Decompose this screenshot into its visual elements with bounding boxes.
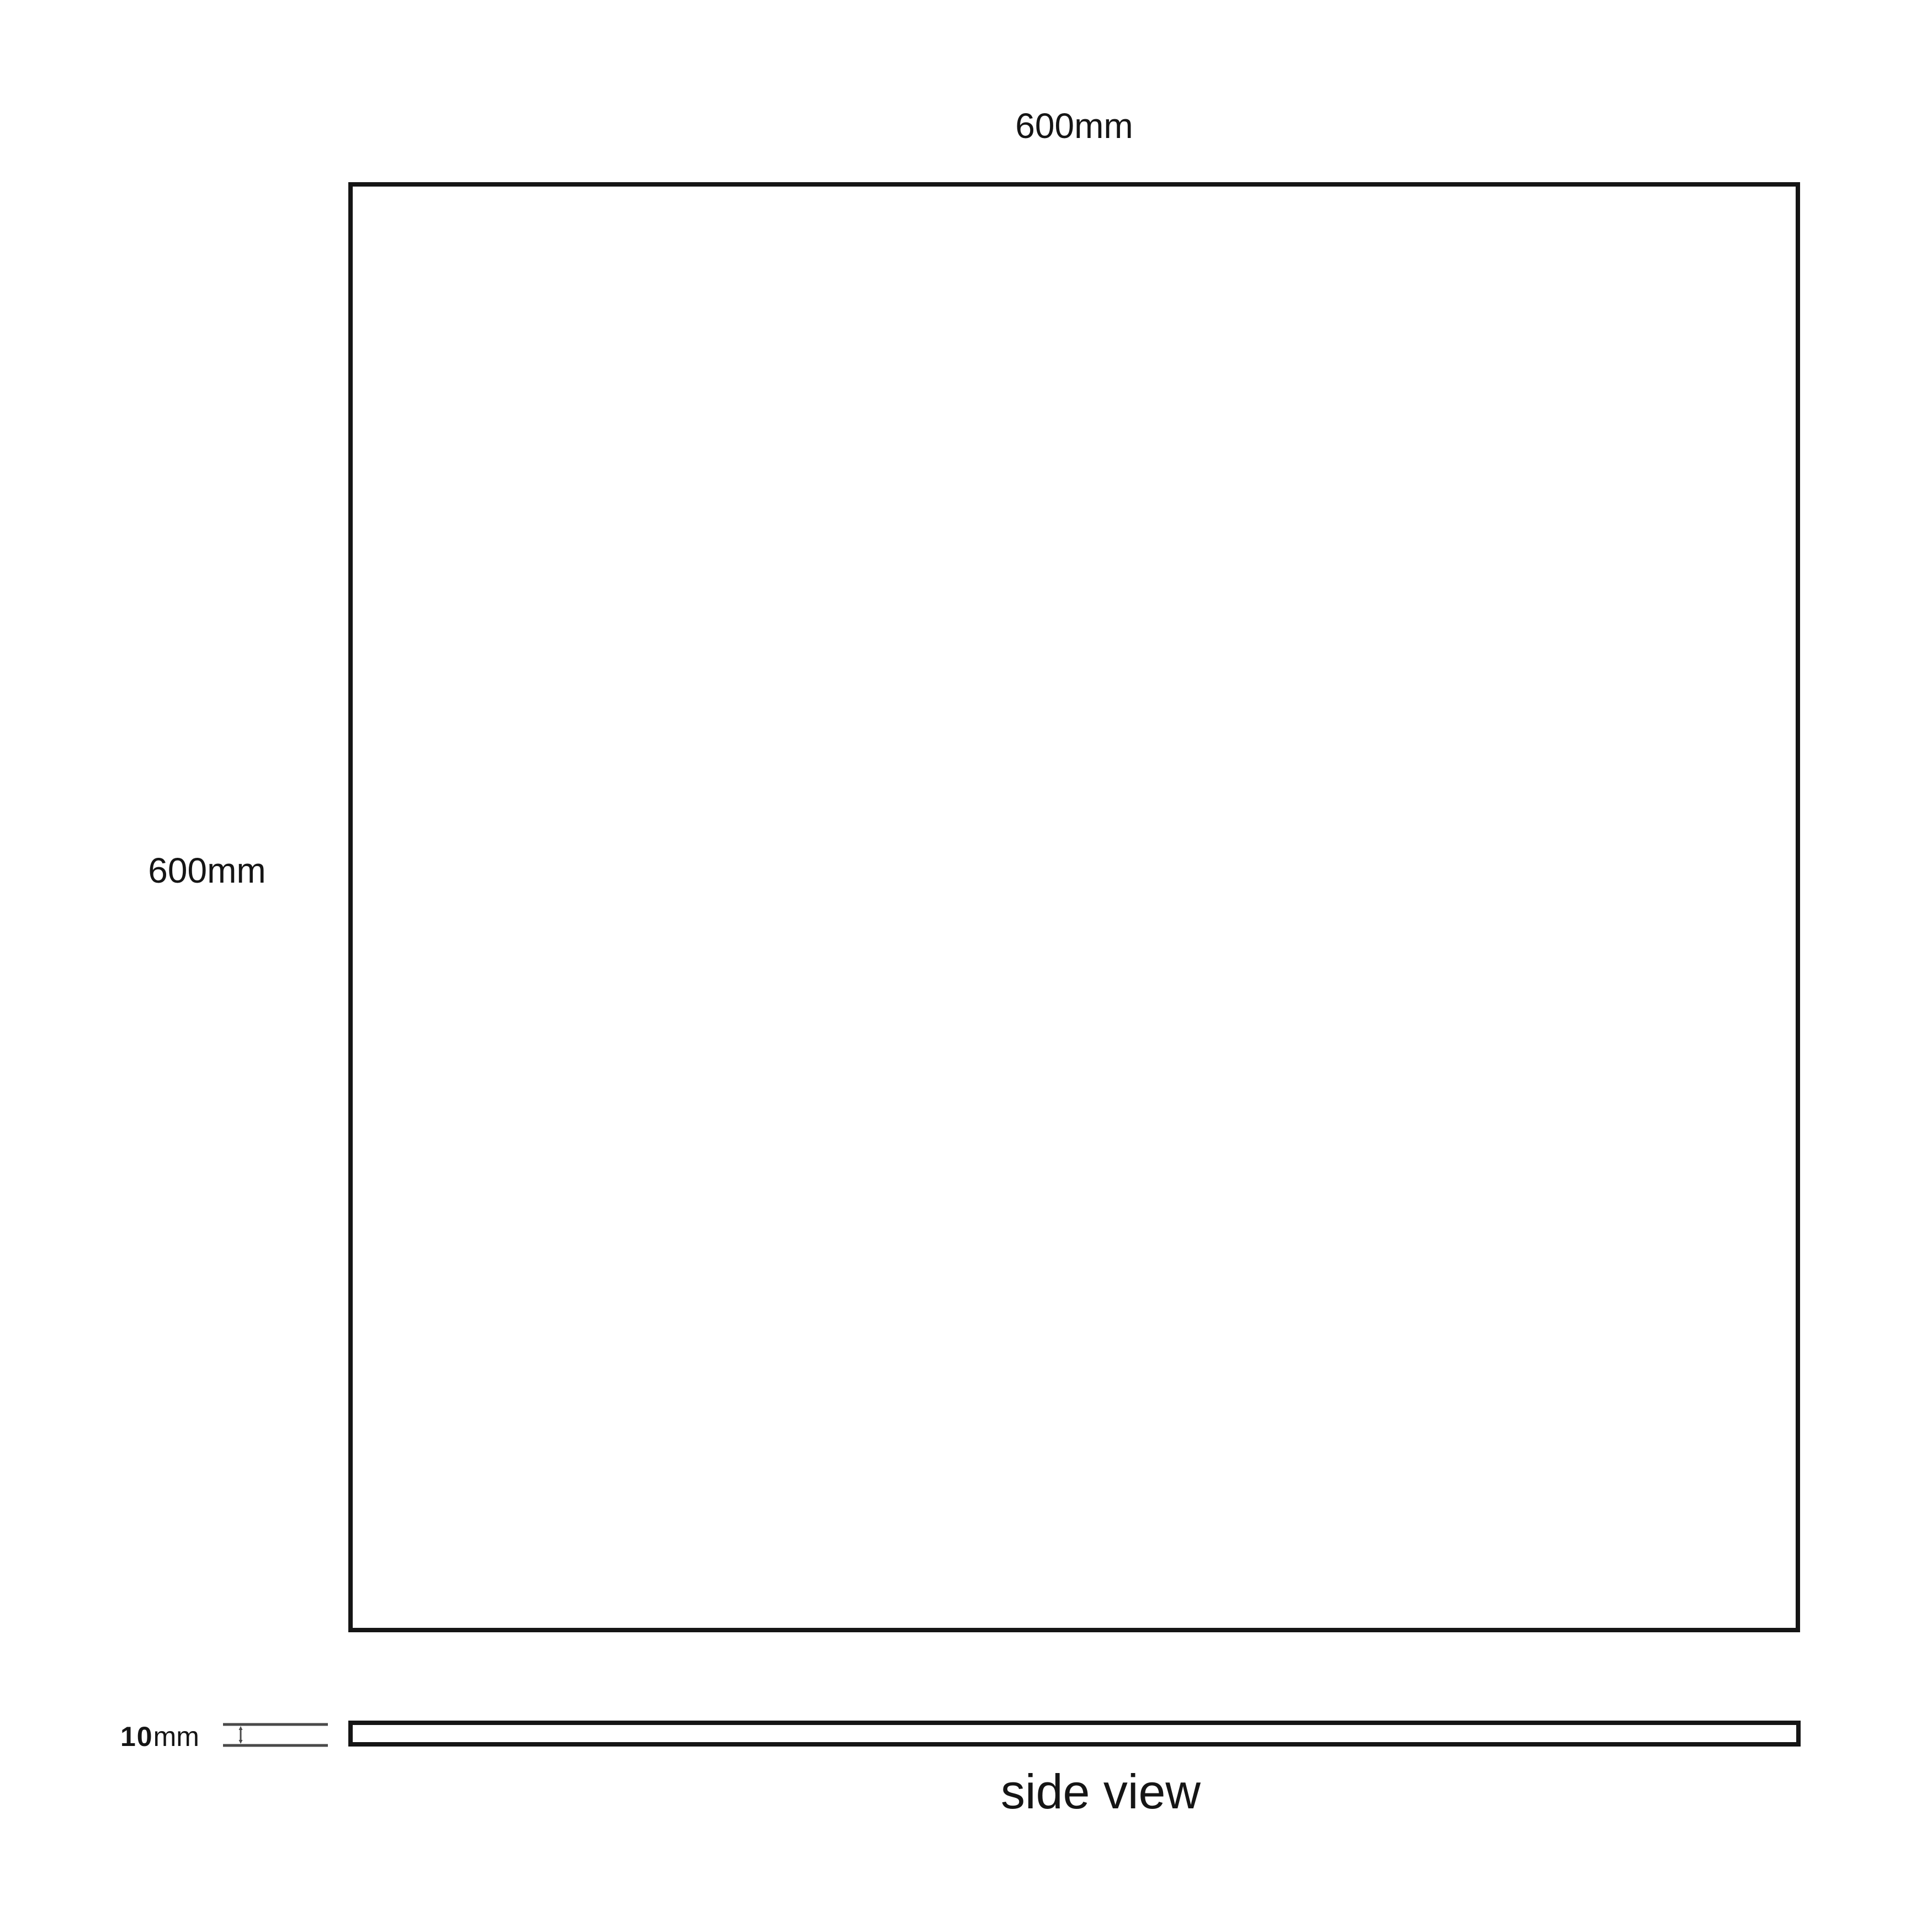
front-view-outline (348, 182, 1800, 1632)
side-view-caption: side view (1001, 1768, 1201, 1816)
thickness-value: 10 (120, 1723, 153, 1750)
front-width-dimension-label: 600mm (1015, 108, 1133, 144)
side-view-outline (348, 1721, 1801, 1747)
thickness-dimension-marker-icon (223, 1721, 329, 1749)
thickness-unit: mm (153, 1723, 199, 1750)
front-height-dimension-label: 600mm (148, 853, 266, 888)
thickness-dimension-label: 10mm (120, 1720, 199, 1753)
dimension-diagram: 600mm 600mm 10mm side view (0, 0, 1932, 1932)
